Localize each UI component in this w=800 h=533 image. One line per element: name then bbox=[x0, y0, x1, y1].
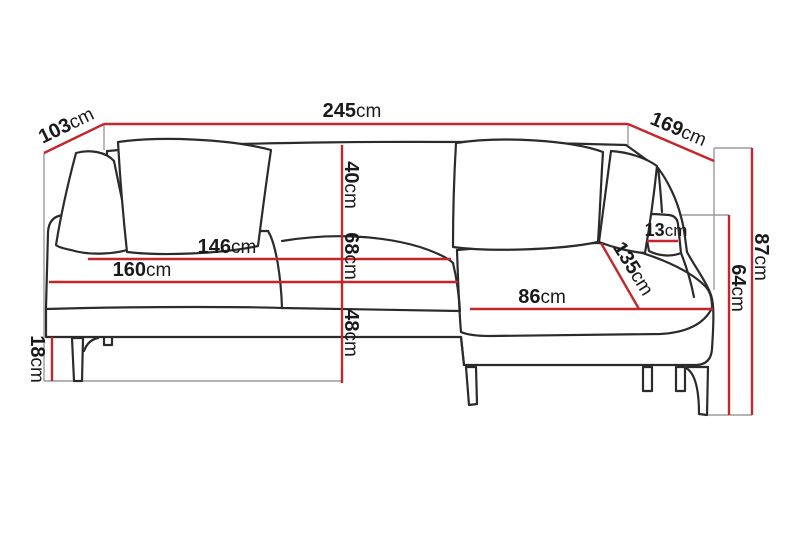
chaise-leg-back-right bbox=[676, 367, 685, 391]
dim-label-leg-height: 18cm bbox=[26, 335, 48, 383]
dim-label-chaise-seat-width: 86cm bbox=[518, 286, 566, 308]
dim-chaise-seat-width-unit: cm bbox=[540, 287, 565, 308]
dim-leg-height-value: 18 bbox=[26, 335, 48, 357]
dim-total-width-unit: cm bbox=[356, 101, 381, 122]
dim-chaise-seat-width-value: 86 bbox=[518, 286, 540, 308]
dim-label-armrest-width: 13cm bbox=[645, 220, 688, 240]
dim-total-height-unit: cm bbox=[750, 255, 771, 280]
dim-seat-depth-value: 68 bbox=[340, 232, 362, 254]
dim-label-arm-height: 64cm bbox=[727, 264, 749, 312]
dim-total-height-value: 87 bbox=[750, 233, 772, 255]
dim-label-seat-width: 160cm bbox=[113, 259, 172, 281]
sofa-leg-front-left-brace bbox=[84, 338, 98, 351]
dim-backrest-height-unit: cm bbox=[340, 183, 361, 208]
dim-seat-depth-unit: cm bbox=[340, 254, 361, 279]
dim-seat-height-value: 48 bbox=[340, 309, 362, 331]
dim-armrest-width-value: 13 bbox=[645, 220, 665, 240]
dim-arm-height-unit: cm bbox=[727, 286, 748, 311]
dim-arm-height-value: 64 bbox=[727, 264, 749, 287]
chaise-leg-back-left bbox=[643, 367, 652, 391]
dim-label-inner-width: 146cm bbox=[198, 236, 257, 258]
chaise-leg-front-left bbox=[466, 367, 477, 405]
dim-label-seat-height: 48cm bbox=[340, 309, 362, 357]
dim-total-width-value: 245 bbox=[323, 100, 356, 122]
dim-label-seat-depth: 68cm bbox=[340, 232, 362, 280]
dim-leg-height-unit: cm bbox=[26, 357, 47, 382]
dim-label-backrest-height: 40cm bbox=[340, 161, 362, 209]
dim-label-total-height: 87cm bbox=[750, 233, 772, 281]
sofa-dimension-diagram-page: 245cm 103cm 169cm 87cm 64cm 40cm 68cm 48… bbox=[0, 0, 800, 533]
dim-inner-width-value: 146 bbox=[198, 236, 231, 258]
dim-inner-width-unit: cm bbox=[231, 237, 256, 258]
dim-backrest-height-value: 40 bbox=[340, 161, 362, 183]
dim-armrest-width-unit: cm bbox=[665, 221, 688, 240]
dim-seat-height-unit: cm bbox=[340, 331, 361, 356]
sofa-leg-bracket bbox=[104, 338, 112, 345]
pillow-right-large bbox=[453, 140, 603, 250]
dim-label-total-width: 245cm bbox=[323, 100, 382, 122]
sofa-leg-front-left bbox=[72, 338, 83, 381]
dim-seat-width-value: 160 bbox=[113, 259, 146, 281]
dim-seat-width-unit: cm bbox=[146, 260, 171, 281]
chaise-leg-front-right bbox=[686, 367, 708, 415]
sofa-dimension-diagram: 245cm 103cm 169cm 87cm 64cm 40cm 68cm 48… bbox=[0, 0, 800, 533]
